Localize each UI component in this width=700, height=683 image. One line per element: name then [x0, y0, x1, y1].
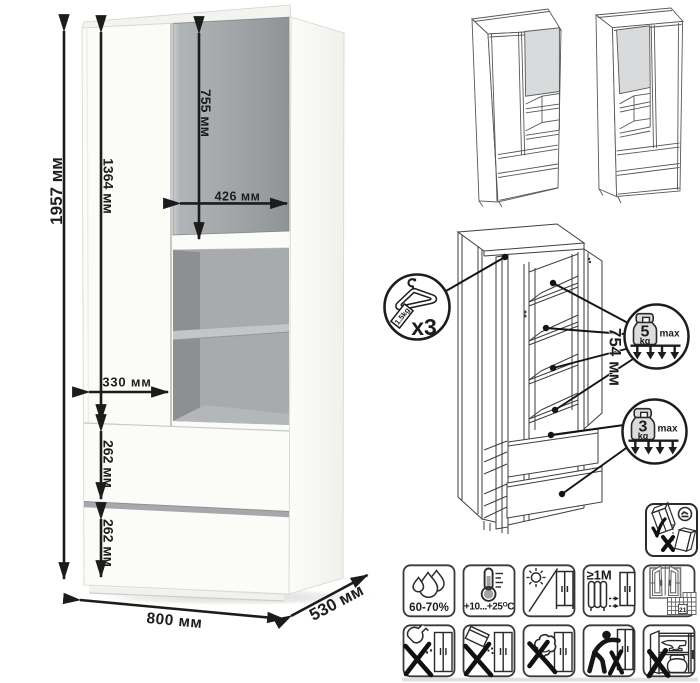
svg-text:21: 21: [679, 607, 687, 614]
svg-text:1957 мм: 1957 мм: [47, 157, 66, 225]
svg-text:426 мм: 426 мм: [215, 190, 261, 204]
svg-text:1364 мм: 1364 мм: [101, 158, 117, 214]
svg-text:800 мм: 800 мм: [146, 610, 203, 632]
svg-text:755 мм: 755 мм: [198, 89, 214, 137]
svg-text:≥1M: ≥1M: [587, 568, 612, 583]
svg-text:max: max: [658, 424, 678, 435]
svg-text:754 мм: 754 мм: [606, 328, 625, 386]
svg-text:kg: kg: [640, 336, 651, 346]
svg-text:262 мм: 262 мм: [101, 519, 117, 567]
svg-text:kg: kg: [638, 431, 649, 441]
svg-text:530 мм: 530 мм: [306, 581, 366, 625]
svg-text:60-70%: 60-70%: [409, 602, 449, 614]
svg-text:262 мм: 262 мм: [101, 440, 117, 488]
svg-text:max: max: [660, 329, 680, 340]
svg-text:+10...+25OC: +10...+25OC: [464, 602, 514, 613]
svg-text:x3: x3: [411, 314, 437, 340]
svg-text:330 мм: 330 мм: [102, 375, 151, 390]
